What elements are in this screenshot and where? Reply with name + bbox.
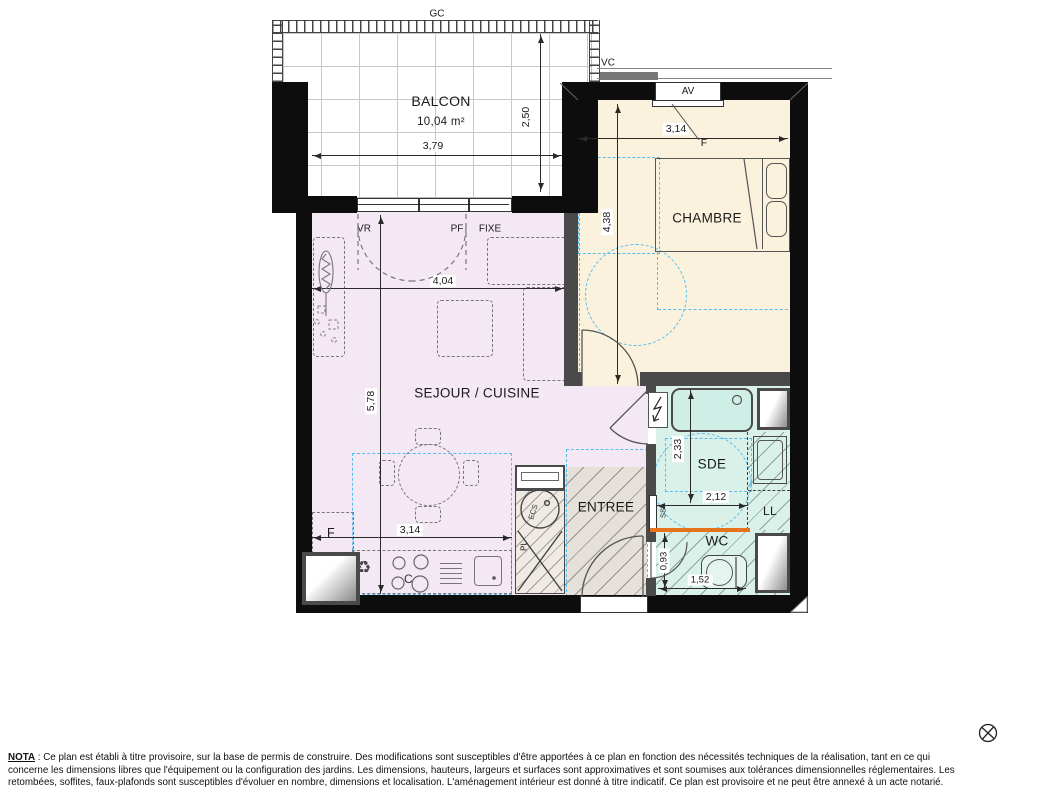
balcony-label: BALCON xyxy=(411,93,470,109)
window-f-label: F xyxy=(701,137,707,149)
window-mullion xyxy=(468,199,470,211)
guardrail-label: GC xyxy=(427,9,448,20)
fridge-label: F xyxy=(327,526,335,540)
dim-living-width: 4,04 xyxy=(430,275,456,287)
dim-line-balcony-width xyxy=(312,155,562,156)
bedroom-window-sill xyxy=(652,100,724,107)
living-room-label: SEJOUR / CUISINE xyxy=(414,386,540,401)
entry-shelf xyxy=(515,465,565,490)
entry-label: ENTREE xyxy=(578,500,635,515)
duct-shaft xyxy=(757,388,790,430)
vc-label: VC xyxy=(601,58,615,69)
bedroom-label: CHAMBRE xyxy=(672,211,742,226)
wall xyxy=(564,372,582,386)
dim-wc-width: 1,52 xyxy=(688,575,713,586)
floor-plan: GC BALCON 10,04 m² 3,79 2,50 VR PF FIXE … xyxy=(0,0,1055,800)
wall xyxy=(512,196,564,213)
vanity-unit xyxy=(753,436,787,484)
chair xyxy=(379,460,395,486)
duct-shaft xyxy=(755,533,790,593)
french-door-label: PF xyxy=(451,224,464,235)
chair xyxy=(415,428,441,445)
washing-machine-label: LL xyxy=(763,504,777,518)
dim-sde-width: 2,12 xyxy=(703,491,729,503)
nota-line-3: retombées, soffites, faux-plafonds sont … xyxy=(8,777,1050,790)
balcony-door-window xyxy=(357,198,512,212)
window-glazing-line xyxy=(358,204,509,205)
clearance-line xyxy=(658,309,788,310)
shelf-slot xyxy=(521,472,559,481)
entrance-door-threshold xyxy=(580,596,648,613)
kitchen-sink xyxy=(474,556,502,586)
nota-disclaimer: NOTA : Ce plan est établi à titre provis… xyxy=(8,752,1050,790)
balcony-railing-left xyxy=(272,20,283,82)
washbasin xyxy=(757,440,783,480)
wall xyxy=(790,82,808,613)
shower-tray xyxy=(671,388,753,432)
dim-line-wc-width xyxy=(658,588,746,589)
nota-title: NOTA xyxy=(8,752,35,763)
nota-line-2: concerne les dimensions libres que l'équ… xyxy=(8,765,1050,778)
dim-line-living-width xyxy=(312,288,564,289)
appliance-boundary xyxy=(748,490,790,491)
clearance-line xyxy=(579,213,580,386)
dishwasher xyxy=(440,560,462,584)
coffee-table xyxy=(437,300,493,357)
circle-x-icon xyxy=(980,725,997,742)
appliance-boundary xyxy=(747,432,748,530)
wall xyxy=(564,213,578,372)
balcony-railing-right xyxy=(589,20,600,82)
wc-label: WC xyxy=(705,534,728,549)
bedroom-window: AV xyxy=(655,82,721,101)
dim-line-bedroom-width xyxy=(578,138,788,139)
chair xyxy=(463,460,479,486)
dim-balcony-depth: 2,50 xyxy=(520,104,532,130)
nota-line-1: NOTA : Ce plan est établi à titre provis… xyxy=(8,752,1050,765)
towel-radiator-label: SS xyxy=(659,505,668,521)
dim-line-balcony-depth xyxy=(540,34,541,192)
wall xyxy=(640,372,790,386)
balcony-area: 10,04 m² xyxy=(417,116,465,128)
dim-wc-depth: 0,93 xyxy=(659,549,670,574)
dim-line-bedroom-depth xyxy=(617,104,618,384)
shutter-label: VR xyxy=(357,224,371,235)
kitchen-window xyxy=(302,552,360,605)
bed-headboard xyxy=(762,159,763,249)
pillow xyxy=(766,201,787,237)
wall xyxy=(308,196,357,213)
pillow xyxy=(766,163,787,199)
dim-living-depth: 5,78 xyxy=(365,388,377,414)
dim-line-sde-width xyxy=(656,505,748,506)
balcony-tiled-floor xyxy=(282,32,592,198)
dim-balcony-width: 3,79 xyxy=(420,140,446,152)
fixed-glazing-label: FIXE xyxy=(479,224,501,235)
dim-bedroom-depth: 4,38 xyxy=(601,209,613,235)
chair xyxy=(415,506,441,523)
clearance-rect xyxy=(566,449,648,597)
towel-radiator xyxy=(649,495,657,531)
sofa xyxy=(523,287,569,381)
window-mullion xyxy=(418,199,420,211)
dim-sde-depth: 2,33 xyxy=(672,436,684,462)
wall xyxy=(562,82,598,213)
sideboard xyxy=(313,237,345,357)
sofa xyxy=(487,237,569,285)
electrical-panel xyxy=(648,392,668,428)
wall xyxy=(646,578,656,596)
closet-label: PL xyxy=(520,538,529,554)
vc-line xyxy=(597,68,832,69)
shower-room-label: SDE xyxy=(698,457,727,472)
wall xyxy=(296,595,808,613)
dining-table xyxy=(398,444,460,506)
clearance-line xyxy=(657,252,658,310)
balcony-railing-top xyxy=(272,20,598,33)
dim-bedroom-width: 3,14 xyxy=(663,123,689,135)
turning-circle xyxy=(585,244,687,346)
vc-ledge xyxy=(600,72,658,80)
dim-line-kitchen-width xyxy=(312,537,512,538)
dim-line-sde-depth xyxy=(690,390,691,503)
wall xyxy=(272,82,308,213)
dim-kitchen-width: 3,14 xyxy=(397,524,423,536)
